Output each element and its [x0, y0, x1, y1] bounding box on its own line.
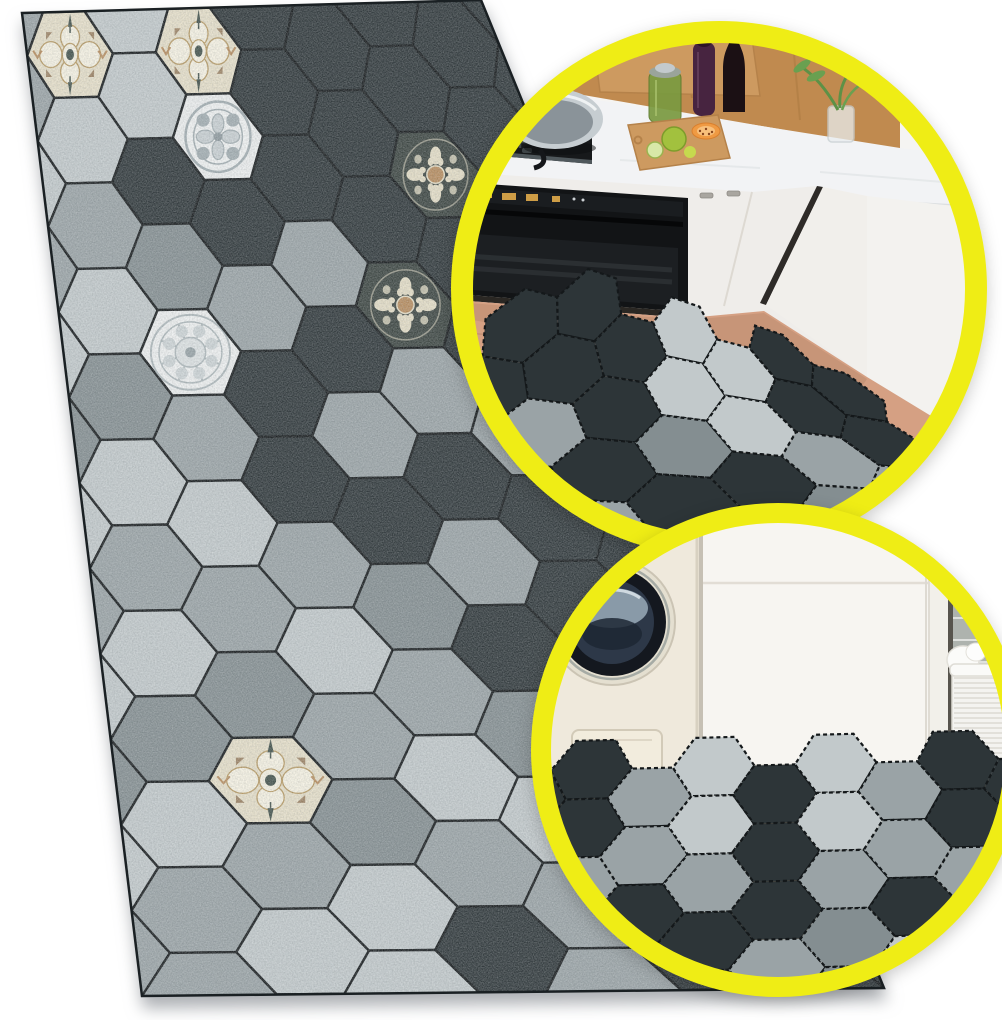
tile-ornament [403, 139, 468, 210]
product-photo-canvas [0, 0, 1002, 1020]
scene-svg [0, 0, 1002, 1020]
hex-tile [44, 996, 181, 1020]
green-apple [662, 127, 686, 151]
hex-tile [727, 997, 828, 1020]
hex-tile [575, 1001, 676, 1020]
tile-ornament [371, 270, 440, 340]
apple-half [647, 142, 663, 158]
oven-display [502, 193, 516, 200]
green-jar [649, 72, 681, 122]
glass-vase [828, 106, 854, 142]
lime [684, 146, 696, 158]
oven-display [526, 194, 538, 201]
tile-ornament [186, 102, 251, 172]
hex-tile [879, 993, 980, 1020]
tile-ornament [151, 315, 230, 390]
oven-display [552, 196, 560, 202]
hex-tile [423, 1005, 524, 1020]
hex-tile [951, 962, 1002, 1020]
pepper-grinder [693, 42, 715, 116]
hex-tile [456, 992, 593, 1020]
hex-tile [250, 994, 387, 1020]
door-handle [700, 193, 713, 198]
hex-tile [867, 987, 1002, 1020]
door-handle [727, 191, 740, 196]
